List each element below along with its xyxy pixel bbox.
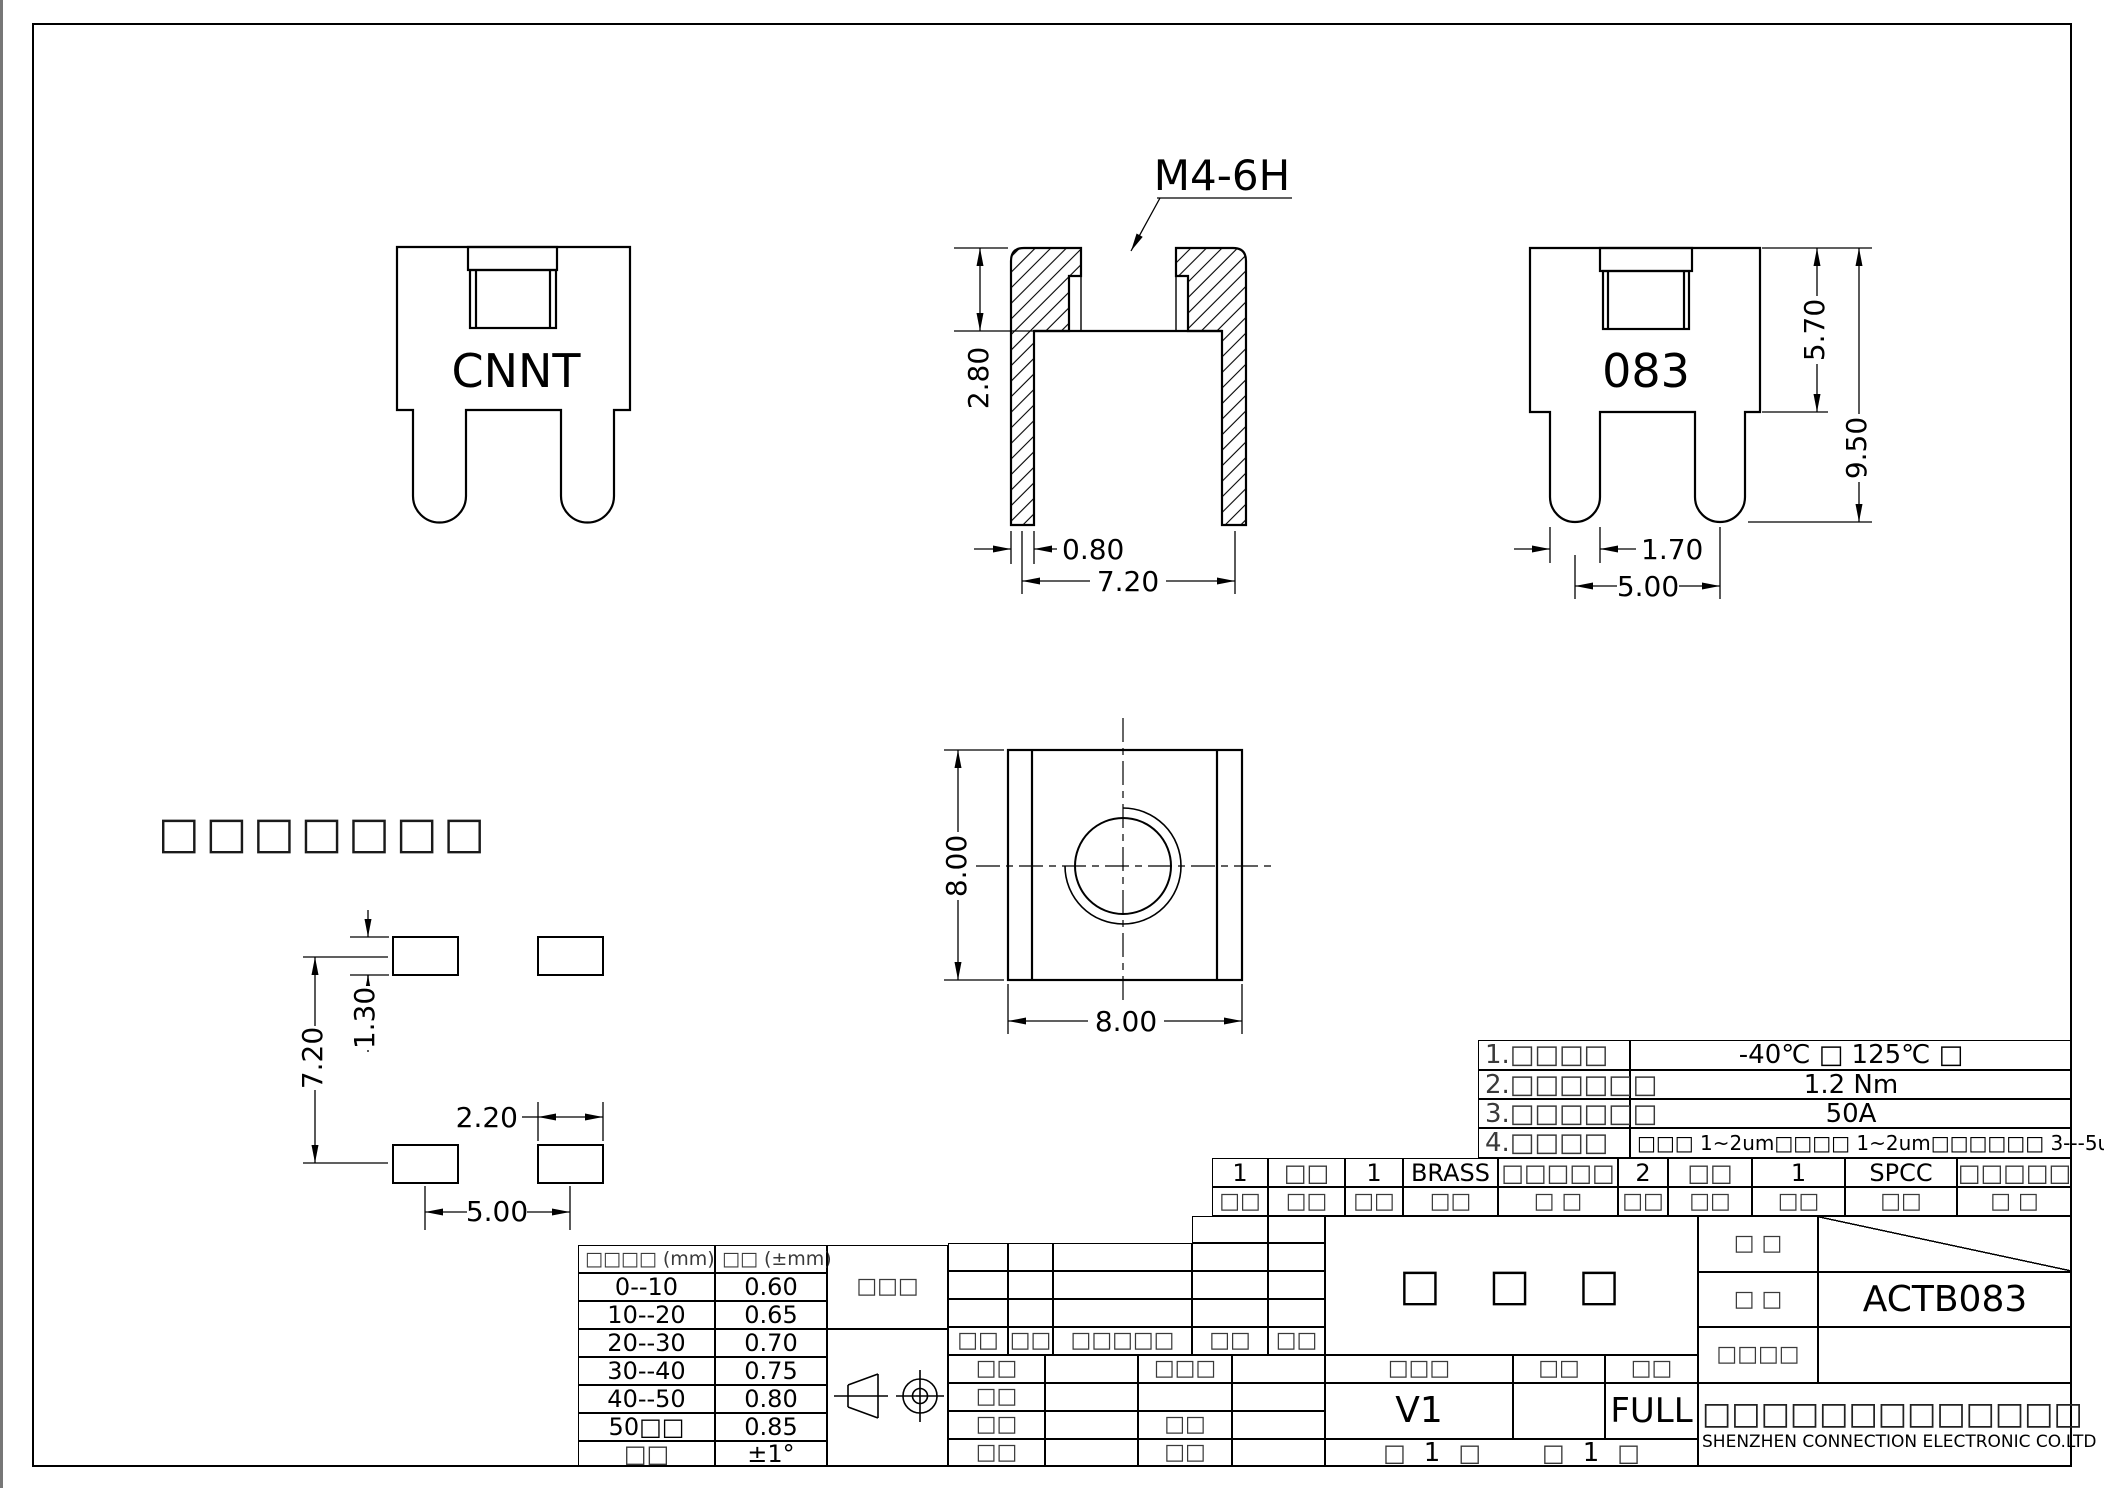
bom-header: □□ (1618, 1187, 1668, 1216)
revision-empty-cell (1268, 1243, 1325, 1271)
pad-top-left (393, 937, 458, 975)
revision-header-docno: □□□□□ (1053, 1327, 1192, 1355)
sheet-label: □ (1542, 1441, 1565, 1465)
sheet-label: □ (1617, 1441, 1640, 1465)
tolerance-side-label: □□□ (827, 1245, 948, 1329)
bom-index: 1 (1752, 1158, 1845, 1187)
signoff-role: □□ (948, 1355, 1045, 1383)
front-view: CNNT (397, 247, 630, 523)
chinese-note-placeholder: □□□□□□□ (158, 808, 491, 859)
third-angle-projection-icon (828, 1330, 947, 1466)
revision-empty-cell (1192, 1243, 1268, 1271)
tolerance-range: 20--30 (578, 1329, 715, 1357)
dim-row-pitch: 7.20 (296, 1027, 329, 1089)
tolerance-value: 0.70 (715, 1329, 827, 1357)
bom-remark: □□□□□ (1957, 1158, 2072, 1187)
scale-value: FULL (1605, 1383, 1698, 1439)
company-name-cn: □□□□□□□□□□□□□ (1702, 1399, 2083, 1430)
dim-pad-width: 2.20 (456, 1101, 518, 1134)
revision-empty-cell (948, 1271, 1008, 1299)
revision-empty-cell (1053, 1299, 1192, 1327)
footprint-view (393, 937, 603, 1183)
revision-empty-cell (948, 1243, 1008, 1271)
note-label: 2.□□□□□□ (1478, 1070, 1630, 1099)
signoff-blank (1045, 1383, 1138, 1411)
side-thread-notch-outer (1600, 248, 1692, 271)
bom-remark: □□□□□ (1498, 1158, 1618, 1187)
part-name: □ □ □ (1325, 1216, 1698, 1355)
dim-top-height: 8.00 (940, 835, 973, 897)
note-label: 1.□□□□ (1478, 1040, 1630, 1070)
signoff-blank (1232, 1355, 1325, 1383)
section-left-wall (1011, 248, 1081, 525)
dim-side-total-height: 9.50 (1840, 417, 1873, 479)
bom-header: □ □ (1957, 1187, 2072, 1216)
dim-side-leg-pitch: 5.00 (1617, 570, 1679, 603)
version-value: V1 (1325, 1383, 1513, 1439)
section-view (1011, 248, 1246, 525)
tolerance-angle-value: ±1° (715, 1441, 827, 1467)
drawing-number: ACTB083 (1818, 1272, 2072, 1327)
tolerance-value: 0.80 (715, 1385, 827, 1413)
sheet-label: □ (1383, 1441, 1406, 1465)
sheet-number: 1 (1583, 1440, 1600, 1466)
revision-header-mark: □□ (948, 1327, 1008, 1355)
mark-value-diagonal (1818, 1216, 2072, 1272)
bom-header: □□ (1403, 1187, 1498, 1216)
drawing-number-label: □ □ (1698, 1272, 1818, 1327)
thread-leader-arrow (1131, 198, 1160, 251)
tolerance-range: 50□□ (578, 1413, 715, 1441)
bom-header: □□ (1268, 1187, 1345, 1216)
bom-material-brass: BRASS (1403, 1158, 1498, 1187)
pad-bottom-left (393, 1145, 458, 1183)
bom-header: □□ (1668, 1187, 1752, 1216)
dim-side-body-height: 5.70 (1798, 299, 1831, 361)
revision-empty-cell (1268, 1271, 1325, 1299)
note-value-current: 50A (1630, 1099, 2072, 1128)
side-view: 083 (1530, 248, 1760, 522)
revision-empty-cell (1192, 1299, 1268, 1327)
company-name-en: SHENZHEN CONNECTION ELECTRONIC CO.LTD (1702, 1434, 2097, 1451)
dim-pad-height: 1.30 (348, 987, 381, 1049)
tolerance-value: 0.85 (715, 1413, 827, 1441)
tolerance-range: 0--10 (578, 1273, 715, 1301)
version-header: □□□ (1325, 1355, 1513, 1383)
revision-empty-cell (1053, 1243, 1192, 1271)
dim-side-leg-width: 1.70 (1641, 533, 1703, 566)
bom-name: □□ (1668, 1158, 1752, 1187)
signoff-blank (1045, 1439, 1138, 1467)
revision-empty-cell (1008, 1243, 1053, 1271)
company-cell: □□□□□□□□□□□□□ SHENZHEN CONNECTION ELECTR… (1698, 1383, 2072, 1467)
top-view-outline (1008, 750, 1242, 980)
units-value (1513, 1383, 1605, 1439)
top-view (976, 718, 1274, 1012)
thread-callout: M4-6H (1154, 151, 1290, 200)
signoff-role: □□□ (1138, 1355, 1232, 1383)
bom-qty: 1 (1212, 1158, 1268, 1187)
center-lines (976, 718, 1274, 1012)
bom-header: □□ (1212, 1187, 1268, 1216)
revision-empty-cell (948, 1299, 1008, 1327)
bom-header: □□ (1345, 1187, 1403, 1216)
tolerance-value: 0.65 (715, 1301, 827, 1329)
bom-material-spcc: SPCC (1845, 1158, 1957, 1187)
signoff-blank (1232, 1383, 1325, 1411)
side-view-label: 083 (1602, 344, 1690, 398)
tolerance-value: 0.60 (715, 1273, 827, 1301)
signoff-blank (1232, 1411, 1325, 1439)
front-view-label: CNNT (451, 344, 581, 398)
pad-top-right (538, 937, 603, 975)
units-header: □□ (1513, 1355, 1605, 1383)
projection-symbol-cell (827, 1329, 948, 1467)
signoff-role: □□ (948, 1439, 1045, 1467)
bom-header: □ □ (1498, 1187, 1618, 1216)
note-value-temp-range: -40℃ □ 125℃ □ (1630, 1040, 2072, 1070)
bom-qty: 2 (1618, 1158, 1668, 1187)
revision-header-count: □□ (1008, 1327, 1053, 1355)
revision-empty-cell (1268, 1299, 1325, 1327)
signoff-blank (1045, 1411, 1138, 1439)
signoff-blank (1232, 1439, 1325, 1467)
revision-header-sign: □□ (1192, 1327, 1268, 1355)
tolerance-value-header: □□ (±mm) (715, 1245, 827, 1273)
revision-empty-cell (1192, 1271, 1268, 1299)
signoff-role: □□ (1138, 1439, 1232, 1467)
note-value-plating: □□□ 1~2um□□□□ 1~2um□□□□□□ 3---5um (1630, 1128, 2072, 1158)
note-value-torque: 1.2 Nm (1630, 1070, 2072, 1099)
scale-header: □□ (1605, 1355, 1698, 1383)
revision-empty-cell (1008, 1271, 1053, 1299)
revision-empty-cell (1053, 1271, 1192, 1299)
top-view-dimensions: 8.00 8.00 (940, 750, 1242, 1038)
dim-section-depth: 2.80 (962, 347, 995, 409)
side-thread-notch-inner (1603, 271, 1689, 329)
tolerance-angle-label: □□ (578, 1441, 715, 1467)
signoff-role: □□ (948, 1411, 1045, 1439)
dim-section-wall: 0.80 (1062, 533, 1124, 566)
section-right-wall (1176, 248, 1246, 525)
note-label: 3.□□□□□□ (1478, 1099, 1630, 1128)
signoff-role: □□ (948, 1383, 1045, 1411)
dim-section-width: 7.20 (1097, 565, 1159, 598)
signoff-blank (1138, 1383, 1232, 1411)
sheet-total: 1 (1424, 1440, 1441, 1466)
note-label: 4.□□□□ (1478, 1128, 1630, 1158)
bom-header: □□ (1845, 1187, 1957, 1216)
revision-empty-cell (1008, 1299, 1053, 1327)
revision-empty-cell (1268, 1216, 1325, 1243)
tolerance-range: 30--40 (578, 1357, 715, 1385)
revision-empty-cell (1192, 1216, 1268, 1243)
sheet-label: □ (1458, 1441, 1481, 1465)
front-thread-notch-outer (468, 247, 557, 270)
tolerance-range: 10--20 (578, 1301, 715, 1329)
tolerance-range-header: □□□□ (mm) (578, 1245, 715, 1273)
signoff-blank (1045, 1355, 1138, 1383)
material-value (1818, 1327, 2072, 1383)
dim-pad-pitch: 5.00 (466, 1195, 528, 1228)
material-label: □□□□ (1698, 1327, 1818, 1383)
revision-header-date: □□ (1268, 1327, 1325, 1355)
tolerance-value: 0.75 (715, 1357, 827, 1385)
bom-header: □□ (1752, 1187, 1845, 1216)
tolerance-range: 40--50 (578, 1385, 715, 1413)
signoff-role: □□ (1138, 1411, 1232, 1439)
sheet-info-row: □ 1 □ □ 1 □ (1325, 1439, 1698, 1467)
dim-top-width: 8.00 (1095, 1005, 1157, 1038)
bom-name: □□ (1268, 1158, 1345, 1187)
mark-label: □ □ (1698, 1216, 1818, 1272)
front-thread-notch-inner (470, 270, 556, 328)
bom-index: 1 (1345, 1158, 1403, 1187)
pad-bottom-right (538, 1145, 603, 1183)
